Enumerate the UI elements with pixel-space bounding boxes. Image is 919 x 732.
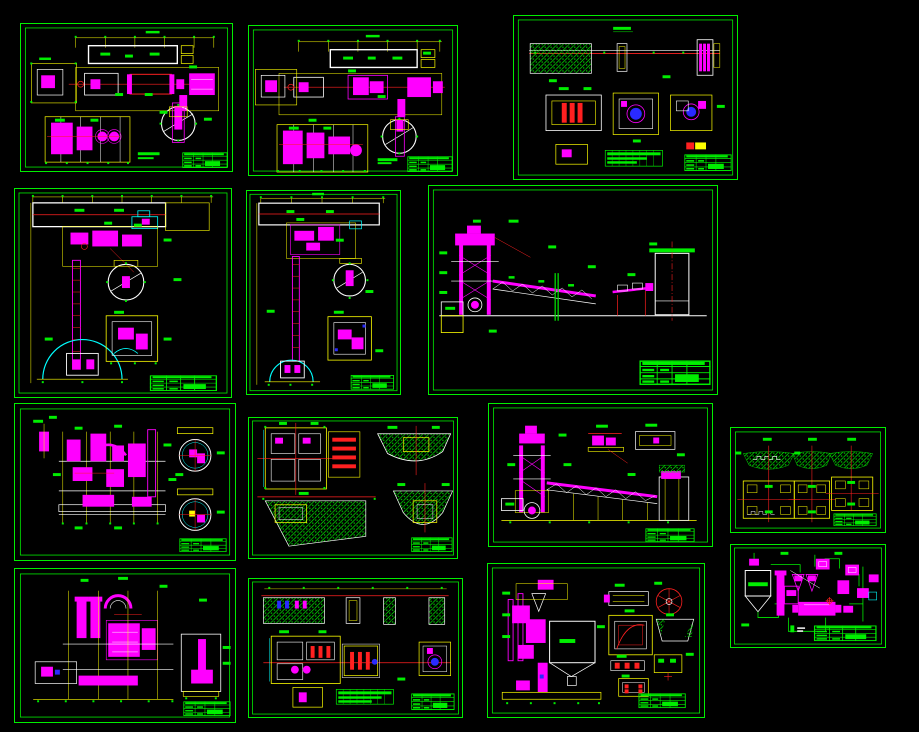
sheet-12-drawing [249,579,462,717]
sheet-05-drawing [247,191,400,394]
sheet-01-drawing [21,24,232,171]
title-block [411,693,454,710]
sheet-07-mill-elevation[interactable] [14,403,236,561]
sheet-08-foundation-sections[interactable] [248,417,458,559]
title-block [179,538,226,552]
title-block [183,701,230,716]
sheet-03-drawing [514,16,737,179]
sheet-01-equipment-plan[interactable] [20,23,233,172]
title-block [150,375,217,391]
title-block [814,625,877,641]
title-block [645,528,694,542]
sheet-04-drawing [15,189,231,397]
title-block [182,152,227,168]
sheet-06-plant-elevation[interactable] [428,185,718,395]
title-block [639,360,710,385]
sheet-03-foundation-plan[interactable] [513,15,738,180]
sheet-04-elevator-elevation[interactable] [14,188,232,398]
sheet-11-drawing [15,569,235,722]
sheet-14-process-flow-diagram[interactable] [730,544,886,648]
title-block [407,156,452,172]
cad-viewport[interactable] [0,0,919,732]
title-block [638,693,685,708]
sheet-13-drawing [488,564,704,717]
sheet-13-equipment-details[interactable] [487,563,705,718]
sheet-02-drawing [249,26,457,175]
sheet-02-equipment-plan[interactable] [248,25,458,176]
title-block [684,154,731,171]
sheet-14-drawing [731,545,885,647]
sheet-10-drawing [731,428,885,532]
sheet-09-conveyor-elevation[interactable] [488,403,713,547]
sheet-12-foundation-sections[interactable] [248,578,463,718]
title-block [411,537,452,552]
sheet-10-foundation-details[interactable] [730,427,886,533]
title-block [351,375,394,390]
sheet-11-mill-elevation[interactable] [14,568,236,723]
sheet-05-elevator-elevation[interactable] [246,190,401,395]
title-block [834,513,877,526]
sheet-06-drawing [429,186,717,394]
sheet-07-drawing [15,404,235,560]
sheet-09-drawing [489,404,712,546]
sheet-08-drawing [249,418,457,558]
